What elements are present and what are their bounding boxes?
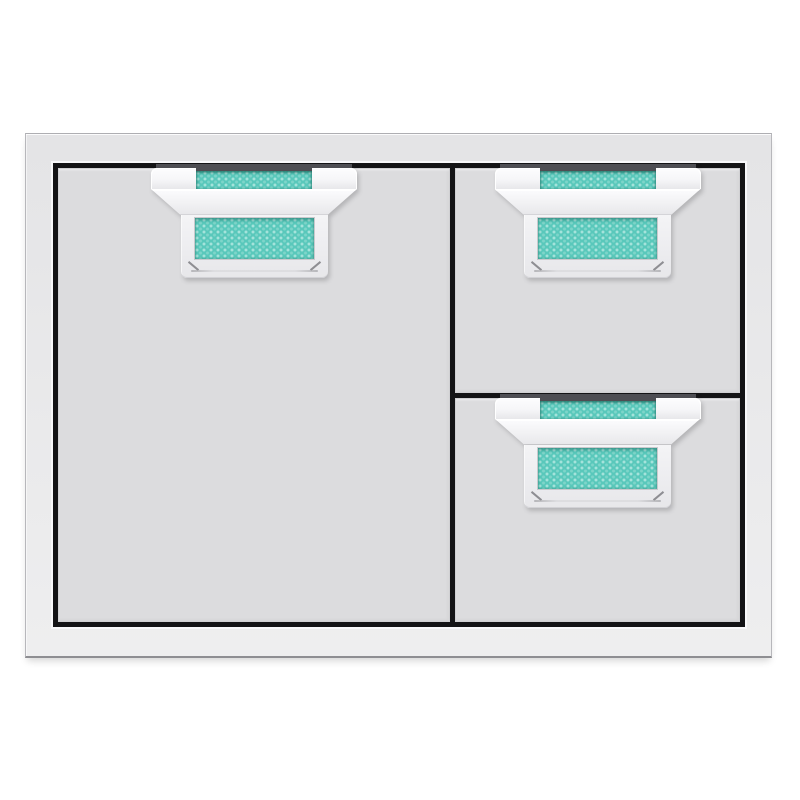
panel-reveal-grid	[53, 163, 745, 627]
handle-top-section	[495, 398, 701, 419]
handle-cap-right	[656, 168, 701, 189]
top-drawer-handle[interactable]	[495, 168, 701, 278]
handle-cap-left	[495, 398, 540, 419]
handle-accent-panel-frame	[524, 445, 671, 508]
handle-accent-strip	[540, 401, 656, 419]
drawer-stack	[455, 168, 740, 622]
handle-grip-bar	[151, 189, 357, 215]
handle-cap-right	[656, 398, 701, 419]
handle-grip-bar	[495, 189, 701, 215]
bevel-base-line	[534, 500, 661, 502]
storage-unit-frame	[25, 133, 772, 658]
handle-cap-left	[495, 168, 540, 189]
handle-accent-panel-frame	[181, 215, 328, 278]
photo-background	[0, 0, 800, 800]
handle-accent-strip	[196, 171, 312, 189]
handle-cap-left	[151, 168, 196, 189]
handle-cap-right	[312, 168, 357, 189]
handle-accent-panel	[538, 218, 657, 259]
bevel-base-line	[191, 270, 318, 272]
handle-accent-panel	[538, 448, 657, 489]
bottom-drawer-handle[interactable]	[495, 398, 701, 508]
handle-accent-panel	[195, 218, 314, 259]
handle-accent-panel-frame	[524, 215, 671, 278]
door-handle[interactable]	[151, 168, 357, 278]
handle-grip-bar	[495, 419, 701, 445]
handle-top-section	[495, 168, 701, 189]
handle-accent-strip	[540, 171, 656, 189]
handle-top-section	[151, 168, 357, 189]
top-drawer[interactable]	[455, 168, 740, 393]
access-door[interactable]	[58, 168, 450, 622]
bottom-drawer[interactable]	[455, 398, 740, 623]
bevel-base-line	[534, 270, 661, 272]
